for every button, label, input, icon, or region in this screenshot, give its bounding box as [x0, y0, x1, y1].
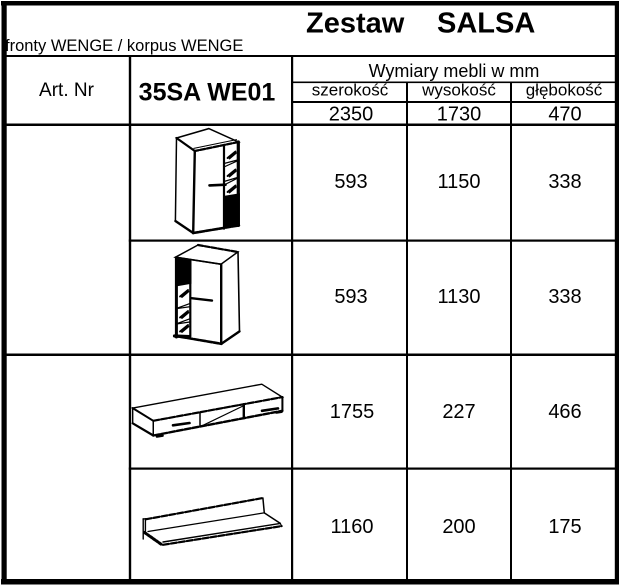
svg-text:35SA WE01: 35SA WE01 [139, 78, 276, 106]
svg-text:593: 593 [334, 286, 367, 308]
svg-text:Art. Nr: Art. Nr [39, 80, 95, 101]
svg-text:175: 175 [548, 516, 581, 538]
svg-text:1730: 1730 [437, 104, 482, 126]
svg-text:2350: 2350 [329, 104, 374, 126]
svg-text:227: 227 [442, 401, 475, 423]
svg-text:338: 338 [548, 171, 581, 193]
svg-text:głębokość: głębokość [526, 81, 603, 100]
svg-text:470: 470 [548, 104, 581, 126]
svg-text:fronty WENGE / korpus WENGE: fronty WENGE / korpus WENGE [5, 37, 243, 55]
svg-text:1160: 1160 [330, 516, 373, 538]
svg-text:1130: 1130 [437, 286, 480, 308]
svg-text:338: 338 [548, 286, 581, 308]
svg-text:593: 593 [334, 171, 367, 193]
svg-text:wysokość: wysokość [421, 81, 496, 100]
svg-text:1755: 1755 [330, 401, 375, 423]
svg-text:1150: 1150 [437, 171, 480, 193]
svg-text:466: 466 [548, 401, 581, 423]
svg-text:Wymiary mebli w mm: Wymiary mebli w mm [369, 61, 540, 81]
svg-text:SALSA: SALSA [437, 8, 535, 40]
svg-text:szerokość: szerokość [312, 81, 389, 100]
svg-text:Zestaw: Zestaw [306, 8, 405, 40]
svg-text:200: 200 [442, 516, 475, 538]
